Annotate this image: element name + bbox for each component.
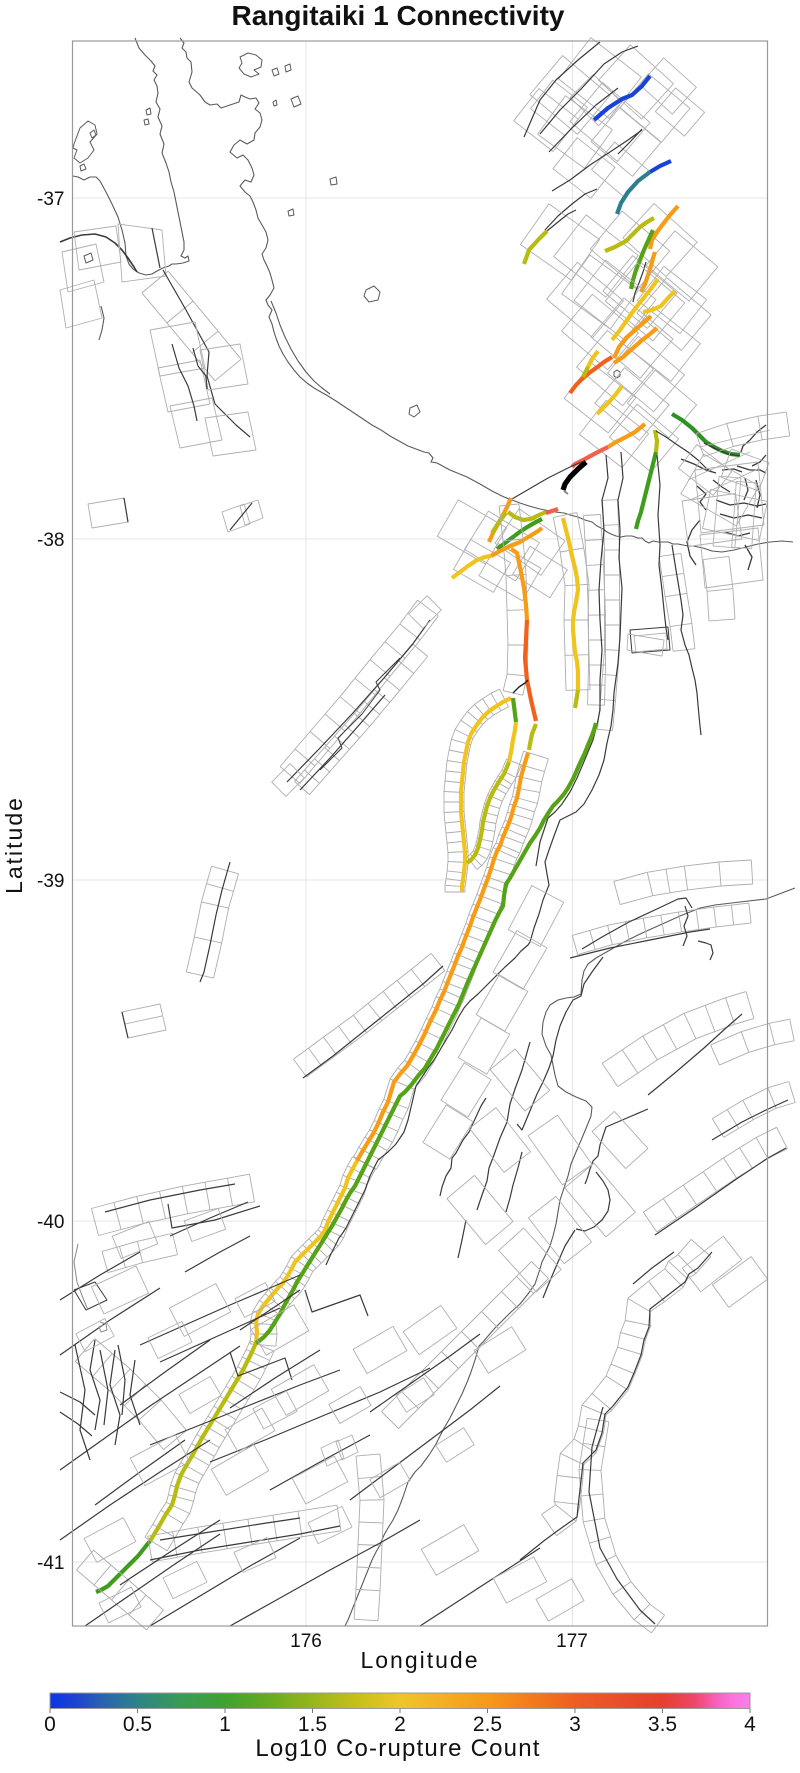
svg-text:177: 177 [556, 1631, 588, 1652]
svg-text:Log10 Co-rupture Count: Log10 Co-rupture Count [255, 1735, 540, 1762]
svg-text:3.5: 3.5 [648, 1713, 677, 1736]
svg-text:1.5: 1.5 [298, 1713, 327, 1736]
svg-text:0.5: 0.5 [123, 1713, 152, 1736]
svg-text:-38: -38 [37, 530, 64, 551]
svg-text:-40: -40 [37, 1212, 64, 1233]
svg-text:3: 3 [569, 1713, 581, 1736]
svg-text:-37: -37 [37, 189, 64, 210]
svg-text:-41: -41 [37, 1553, 64, 1574]
svg-text:1: 1 [219, 1713, 231, 1736]
svg-text:-39: -39 [37, 871, 64, 892]
svg-text:0: 0 [44, 1713, 56, 1736]
svg-text:Latitude: Latitude [1, 796, 27, 894]
svg-text:4: 4 [744, 1713, 756, 1736]
svg-text:176: 176 [290, 1631, 322, 1652]
svg-text:Longitude: Longitude [360, 1647, 479, 1673]
svg-text:2: 2 [394, 1713, 406, 1736]
svg-text:Rangitaiki 1 Connectivity: Rangitaiki 1 Connectivity [232, 0, 565, 31]
svg-text:2.5: 2.5 [473, 1713, 502, 1736]
